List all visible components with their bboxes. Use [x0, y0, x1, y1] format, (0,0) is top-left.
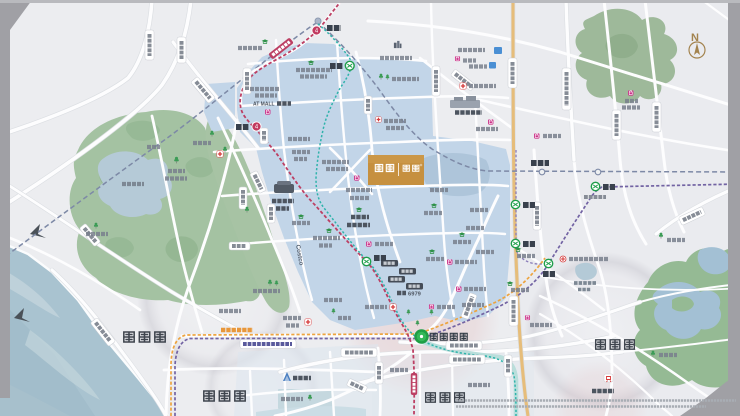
svg-text:6979: 6979: [408, 292, 422, 298]
svg-text:AT MALL: AT MALL: [253, 102, 275, 108]
